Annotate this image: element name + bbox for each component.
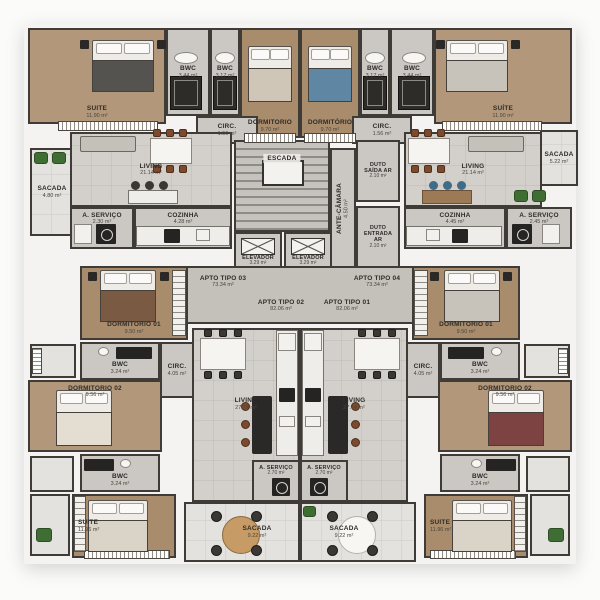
- window: [58, 121, 158, 131]
- chair: [179, 129, 187, 137]
- vanity-counter: [116, 347, 152, 359]
- unit-label-tipo04: APTO TIPO 0473.34 m²: [346, 275, 408, 288]
- double-bed: [446, 40, 508, 92]
- unit-label-tipo01: APTO TIPO 0182.06 m²: [316, 299, 378, 312]
- dining-table: [150, 138, 192, 164]
- unit-label-tipo03: APTO TIPO 0373.34 m²: [192, 275, 254, 288]
- chair: [234, 329, 242, 337]
- chair: [373, 329, 381, 337]
- plant: [514, 190, 528, 202]
- unit-label-tipo02: APTO TIPO 0282.06 m²: [250, 299, 312, 312]
- washing-machine: [96, 224, 116, 244]
- chair: [166, 165, 174, 173]
- bar-stool: [443, 181, 452, 190]
- room-duto-saida-ar: DUTO SAÍDA AR2.10 m²: [356, 140, 400, 202]
- chair: [219, 371, 227, 379]
- bar-stool: [241, 438, 250, 447]
- toilet: [98, 347, 109, 356]
- stair-landing: [262, 160, 304, 186]
- plant: [532, 190, 546, 202]
- nightstand: [157, 40, 166, 49]
- plant: [36, 528, 52, 542]
- sink: [402, 52, 426, 64]
- bar-stool: [145, 181, 154, 190]
- chair: [373, 371, 381, 379]
- sink: [215, 52, 235, 64]
- chair: [327, 511, 338, 522]
- washing-machine: [310, 478, 328, 496]
- washing-machine: [272, 478, 290, 496]
- chair: [166, 129, 174, 137]
- stove: [452, 229, 468, 243]
- bar-stool: [351, 420, 360, 429]
- room-sacada-tr: SACADA5.22 m²: [540, 130, 578, 186]
- window: [244, 133, 296, 143]
- double-bed: [308, 46, 352, 102]
- room-circ-br: CIRC.4.05 m²: [406, 342, 440, 398]
- shower: [363, 76, 387, 110]
- stove: [164, 229, 180, 243]
- toilet: [471, 459, 482, 468]
- bar-stool: [159, 181, 168, 190]
- toilet: [491, 347, 502, 356]
- stove: [279, 388, 295, 402]
- double-bed: [248, 46, 292, 102]
- vanity-counter: [84, 459, 114, 471]
- room-circ-bl: CIRC.4.05 m²: [160, 342, 194, 398]
- double-bed: [452, 500, 512, 552]
- side-terrace: [30, 494, 70, 556]
- chair: [424, 165, 432, 173]
- chair: [219, 329, 227, 337]
- bar-stool: [351, 438, 360, 447]
- chair: [358, 371, 366, 379]
- sofa: [468, 136, 524, 152]
- shower: [213, 76, 237, 110]
- room-duto-entrada-ar: DUTO ENTRADA AR2.10 m²: [356, 206, 400, 268]
- chair: [411, 129, 419, 137]
- chair: [437, 129, 445, 137]
- window: [304, 133, 356, 143]
- stove: [305, 388, 321, 402]
- bar-stool: [131, 181, 140, 190]
- closet: [172, 270, 186, 336]
- chair: [204, 371, 212, 379]
- sink: [426, 229, 440, 241]
- window: [558, 348, 568, 374]
- sink: [279, 416, 295, 427]
- laundry-tub: [542, 224, 560, 244]
- plant: [548, 528, 564, 542]
- closet: [414, 270, 428, 336]
- plant: [303, 506, 316, 517]
- chair: [411, 165, 419, 173]
- chair: [358, 329, 366, 337]
- elevator-car: [241, 238, 275, 255]
- vanity-counter: [486, 459, 516, 471]
- chair: [204, 329, 212, 337]
- fridge: [304, 333, 322, 351]
- shower: [398, 76, 430, 110]
- chair: [424, 129, 432, 137]
- bar-stool: [429, 181, 438, 190]
- side-terrace: [30, 456, 74, 492]
- dining-table: [354, 338, 400, 370]
- chair: [153, 129, 161, 137]
- laundry-tub: [74, 224, 92, 244]
- elevator-car: [291, 238, 325, 255]
- chair: [367, 511, 378, 522]
- window: [32, 348, 42, 374]
- chair: [367, 545, 378, 556]
- nightstand: [88, 272, 97, 281]
- side-terrace: [530, 494, 570, 556]
- nightstand: [511, 40, 520, 49]
- fridge: [278, 333, 296, 351]
- double-bed: [444, 270, 500, 322]
- bar-stool: [457, 181, 466, 190]
- chair: [388, 329, 396, 337]
- nightstand: [430, 272, 439, 281]
- sink: [196, 229, 210, 241]
- shower: [170, 76, 202, 110]
- nightstand: [160, 272, 169, 281]
- chair: [179, 165, 187, 173]
- side-terrace: [526, 456, 570, 492]
- kitchen-counter: [422, 190, 472, 204]
- toilet: [120, 459, 131, 468]
- bar-stool: [241, 420, 250, 429]
- double-bed: [92, 40, 154, 92]
- chair: [437, 165, 445, 173]
- room-escada: ESCADA: [234, 140, 330, 232]
- sofa: [80, 136, 136, 152]
- kitchen-counter: [136, 226, 230, 246]
- sink: [174, 52, 198, 64]
- plant: [34, 152, 48, 164]
- escada-label: ESCADA: [263, 154, 300, 163]
- sink: [365, 52, 385, 64]
- floor-plan: SACADA4.80 m² SACADA5.22 m² SUITE11.90 m…: [0, 0, 600, 600]
- closet: [514, 496, 526, 552]
- chair: [211, 511, 222, 522]
- nightstand: [436, 40, 445, 49]
- plant: [52, 152, 66, 164]
- nightstand: [503, 272, 512, 281]
- double-bed: [100, 270, 156, 322]
- chair: [211, 545, 222, 556]
- kitchen-counter: [128, 190, 178, 204]
- room-ante-camara: ANTE-CÂMARA4.50 m²: [330, 148, 356, 268]
- chair: [251, 545, 262, 556]
- window: [442, 121, 542, 131]
- chair: [327, 545, 338, 556]
- chair: [388, 371, 396, 379]
- common-hall: APTO TIPO 0373.34 m² APTO TIPO 0473.34 m…: [186, 266, 414, 324]
- washing-machine: [512, 224, 532, 244]
- dining-table: [408, 138, 450, 164]
- chair: [234, 371, 242, 379]
- vanity-counter: [448, 347, 484, 359]
- dining-table: [200, 338, 246, 370]
- nightstand: [80, 40, 89, 49]
- chair: [251, 511, 262, 522]
- sink: [305, 416, 321, 427]
